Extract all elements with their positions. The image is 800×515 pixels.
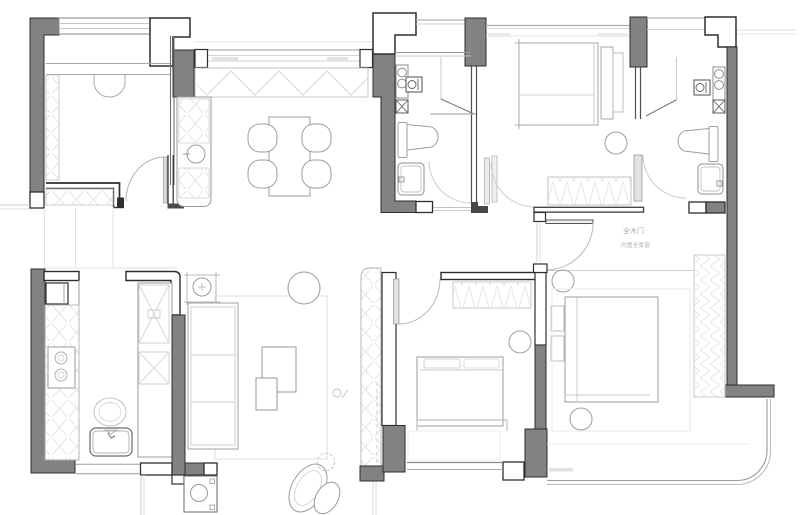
svg-text:全木门: 全木门 [623, 226, 644, 235]
svg-text:内置全景窗: 内置全景窗 [621, 241, 650, 249]
